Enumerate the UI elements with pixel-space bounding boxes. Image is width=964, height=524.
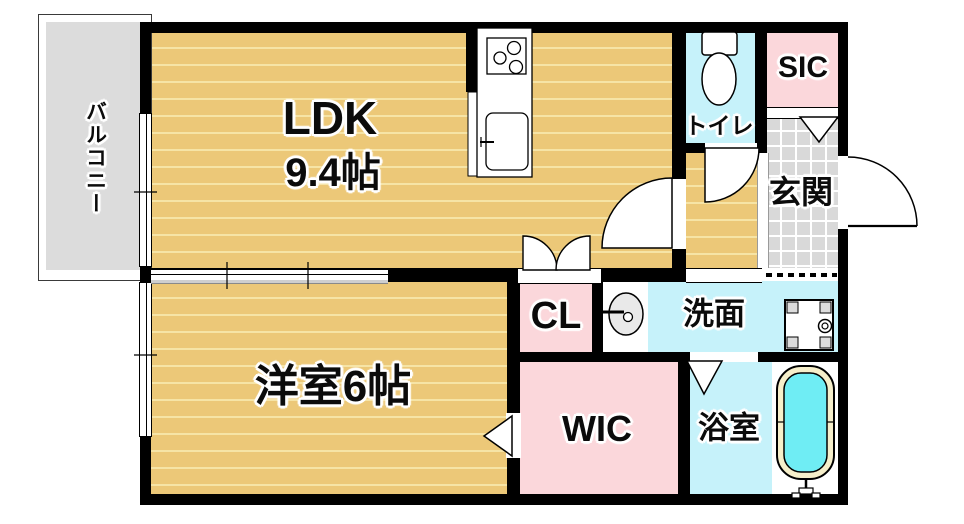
hallway-floor [686,153,762,273]
wall-ldk-hall-upper [672,22,686,178]
wall-senmen-bottom [758,352,838,362]
wall-wic-bath [678,362,690,494]
cl-label: CL [531,297,582,335]
washbasin-alcove [603,282,648,352]
wall-left-upper [140,22,151,113]
wall-toilet-bottom-right [757,143,767,153]
wall-western-wic-lower [507,455,520,495]
ldk-label: LDK [283,95,378,141]
wall-left-lower [140,435,151,495]
ldk-size-label: 9.4帖 [285,153,381,193]
bathtub-area [772,362,838,494]
western-room-label: 洋室6帖 [255,365,411,409]
wall-mid-2 [600,268,686,282]
hall-senmen-threshold [686,268,762,283]
genkan-senmen-step-band [762,268,838,281]
sliding-partition [151,268,388,284]
bath-label: 浴室 [698,413,760,444]
room-ldk-floor [151,32,672,268]
genkan-step [757,153,769,272]
sic-door-sill [767,107,838,119]
toilet-label: トイレ [685,115,754,138]
wall-cl-right [592,282,603,352]
ldk-door-jamb [672,178,686,250]
wall-right-upper [838,22,848,155]
cl-door-sill [517,268,602,284]
balcony-label: バルコニー [85,101,106,216]
entrance-door-arc [848,157,917,226]
balcony-window [139,113,152,267]
wall-toilet-sic [755,22,767,153]
wall-toilet-bottom-left [686,143,705,153]
wic-door-opening [506,413,521,458]
wall-western-wic-upper [507,282,520,415]
senmen-bath-threshold [690,352,758,362]
genkan-label: 玄関 [769,176,833,208]
floor-plan: バルコニー LDK 9.4帖 トイレ SIC 玄関 CL 洗面 洋室6帖 WIC… [0,0,964,524]
wall-kitchen-stub [466,22,478,92]
senmen-label: 洗面 [683,299,745,330]
wall-top [140,22,848,33]
toilet-door-jamb [705,143,757,153]
wall-mid-1 [388,268,517,282]
sic-label: SIC [778,53,828,83]
wall-bottom [140,494,848,505]
wall-cl-wic [507,352,690,362]
entrance-door-jamb [838,155,848,230]
wall-right-lower [838,228,848,505]
western-room-window [139,282,152,437]
wic-label: WIC [562,411,632,447]
